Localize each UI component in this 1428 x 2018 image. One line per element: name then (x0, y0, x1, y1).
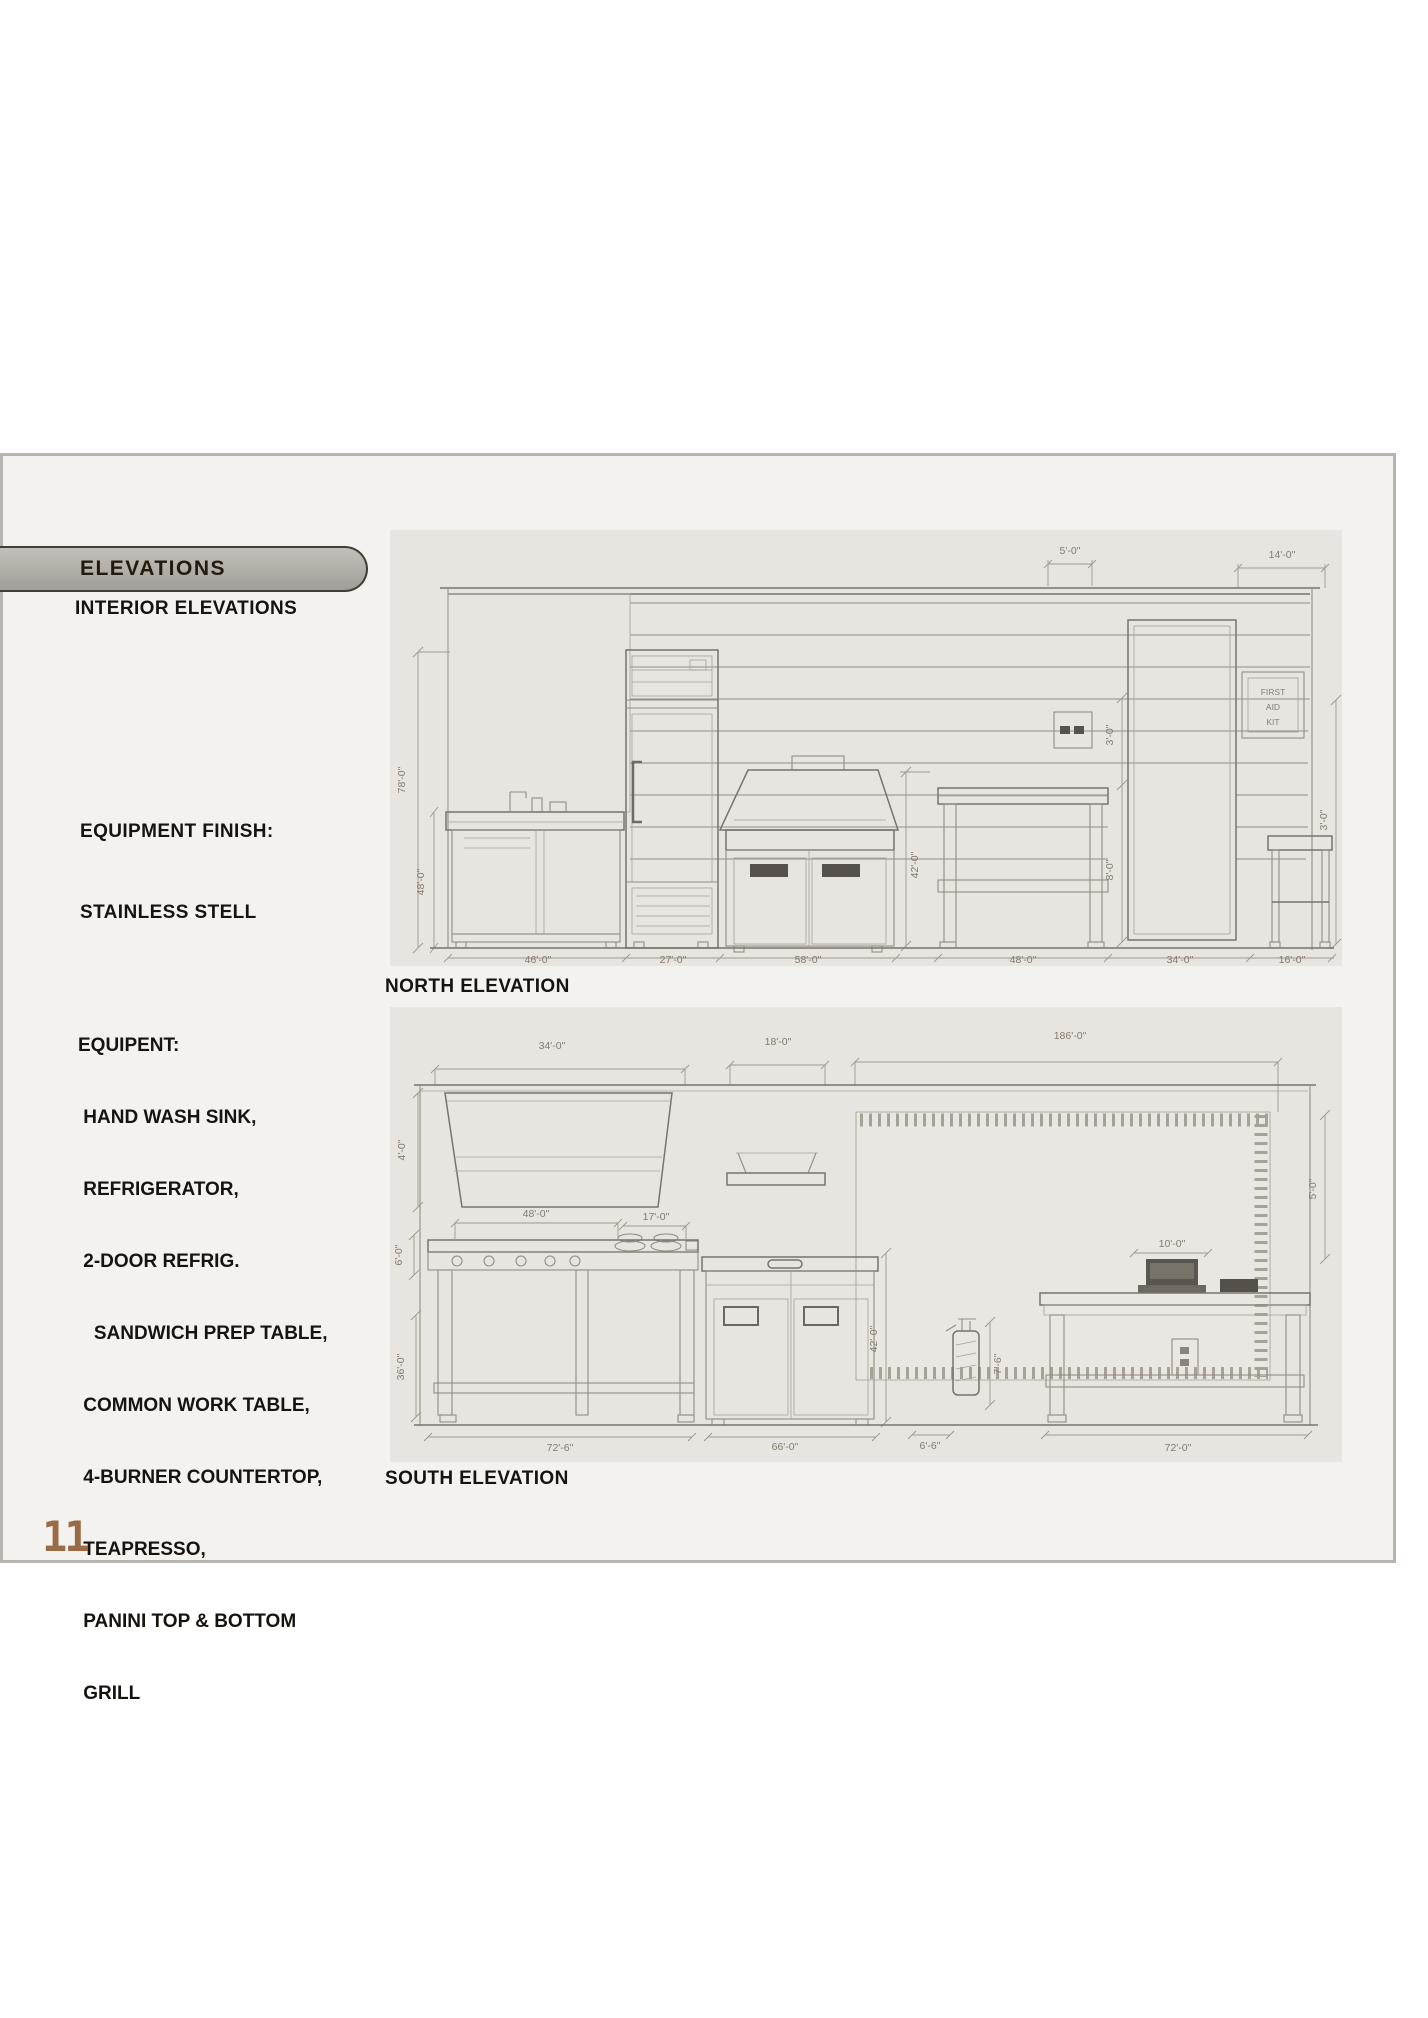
south-elevation-label: SOUTH ELEVATION (385, 1468, 569, 1490)
equipment-list-item: HAND WASH SINK, (78, 1106, 327, 1130)
dim-label: 48'-0" (415, 868, 427, 895)
serving-window-opening (856, 1112, 1270, 1380)
equipment-finish-line2: STAINLESS STELL (80, 899, 274, 926)
dim-label: 18'-0" (765, 1036, 792, 1048)
section-tab-label: ELEVATIONS (0, 557, 366, 581)
stool (1268, 836, 1332, 948)
dim-label: 46'-0" (525, 954, 552, 966)
equipment-finish-block: EQUIPMENT FINISH: STAINLESS STELL (80, 764, 274, 980)
dim-label: 6'-0" (393, 1244, 405, 1265)
four-burner-counter (428, 1234, 698, 1422)
door (1128, 620, 1236, 940)
wall-panel (448, 594, 630, 812)
dim-label: 27'-0" (660, 954, 687, 966)
sign-text: KIT (1266, 717, 1279, 727)
page-subtitle: INTERIOR ELEVATIONS (75, 598, 297, 620)
two-door-refrig-unit (702, 1257, 878, 1425)
dim-label: 186'-0" (1054, 1030, 1087, 1042)
portfolio-page: ELEVATIONS INTERIOR ELEVATIONS EQUIPMENT… (0, 0, 1428, 2018)
equipment-finish-line1: EQUIPMENT FINISH: (80, 818, 274, 845)
equipment-list-item: PANINI TOP & BOTTOM (78, 1610, 327, 1634)
dim-label: 78'-0" (396, 766, 408, 793)
hand-wash-sink (446, 792, 624, 948)
dim-label: 42'-0" (909, 851, 921, 878)
north-elevation-label: NORTH ELEVATION (385, 976, 570, 998)
dim-label: 16'-0" (1279, 954, 1306, 966)
section-tab-elevations: ELEVATIONS (0, 546, 368, 592)
equipment-list-item: COMMON WORK TABLE, (78, 1394, 327, 1418)
dim-label: 34'-0" (539, 1040, 566, 1052)
equipment-list-item: TEAPRESSO, (78, 1538, 327, 1562)
dim-label: 58'-0" (795, 954, 822, 966)
north-elevation-drawing: 5'-0" 14'-0" 78'-0" 48'-0" (390, 530, 1342, 966)
wall-switch-sign (1054, 712, 1092, 748)
dim-label: 10'-0" (1159, 1238, 1186, 1250)
dim-label: 42'-0" (868, 1325, 880, 1352)
dim-label: 4'-0" (396, 1139, 408, 1160)
dim-label: 36'-0" (395, 1353, 407, 1380)
south-elevation-drawing: 34'-0" 18'-0" 186'-0" 4'-0" 6'-0" 36'-0" (390, 1007, 1342, 1462)
dim-label: 3'-0" (1318, 809, 1330, 830)
dim-label: 7'-6" (992, 1353, 1004, 1374)
wall-shelf (727, 1153, 825, 1185)
dim-label: 48'-0" (523, 1208, 550, 1220)
equipment-list-item: 2-DOOR REFRIG. (78, 1250, 327, 1274)
equipment-list-item: REFRIGERATOR, (78, 1178, 327, 1202)
dim-label: 6'-6" (920, 1440, 941, 1452)
exhaust-hood (445, 1093, 672, 1207)
dim-label: 14'-0" (1269, 549, 1296, 561)
dim-label: 3'-0" (1104, 724, 1116, 745)
equipment-list-item: 4-BURNER COUNTERTOP, (78, 1466, 327, 1490)
page-number: 11 (42, 1512, 87, 1561)
refrigerator (626, 650, 718, 948)
sign-text: FIRST (1261, 687, 1286, 697)
cash-register (1138, 1259, 1206, 1293)
dim-label: 5'-0" (1307, 1178, 1319, 1199)
dim-label: 72'-6" (547, 1442, 574, 1454)
equipment-list: EQUIPENT: HAND WASH SINK, REFRIGERATOR, … (78, 986, 327, 1754)
fridge-handle (633, 762, 642, 822)
sandwich-prep-table (720, 756, 898, 952)
dim-label: 5'-0" (1060, 545, 1081, 557)
dim-label: 17'-0" (643, 1211, 670, 1223)
equipment-list-heading: EQUIPENT: (78, 1034, 327, 1058)
dim-label: 34'-0" (1167, 954, 1194, 966)
dim-label: 66'-0" (772, 1441, 799, 1453)
first-aid-kit-sign: FIRST AID KIT (1242, 672, 1304, 738)
equipment-list-item: GRILL (78, 1682, 327, 1706)
sign-text: AID (1266, 702, 1280, 712)
common-work-table (938, 788, 1108, 948)
dim-label: 72'-0" (1165, 1442, 1192, 1454)
equipment-list-item: SANDWICH PREP TABLE, (78, 1322, 327, 1346)
dim-label: 8'-0" (1104, 859, 1116, 880)
dim-label: 48'-0" (1010, 954, 1037, 966)
